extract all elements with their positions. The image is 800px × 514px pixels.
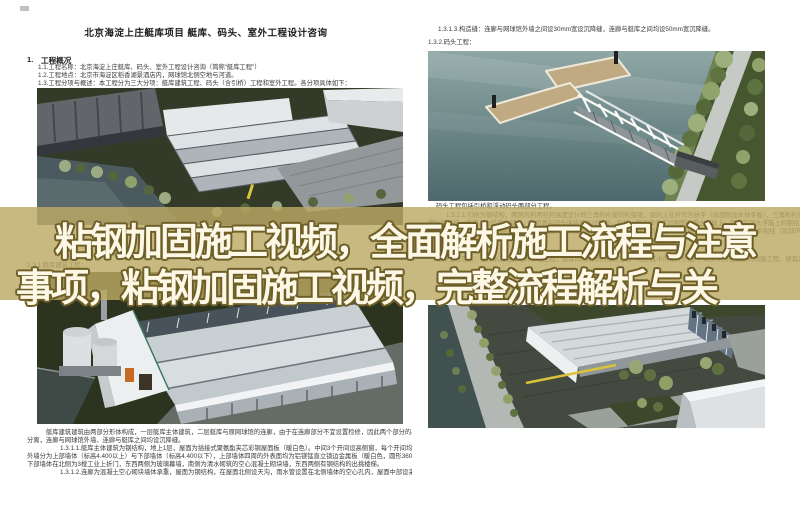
body-line: 外墙分为上部墙体（标高4.400以上）与下部墙体（标高4.400以下），上部墙体… — [27, 453, 412, 461]
overlay-title-line-2: 事项，粘钢加固施工视频，完整流程解析与关 — [16, 257, 716, 312]
page-corner-mark — [20, 6, 29, 11]
body-line: 1.3.1.2.连廊为混凝土空心砌块墙体承重，屋面为钢结构，在屋面北侧设天沟，雨… — [60, 469, 412, 477]
body-line: 分离，连廊与网球馆外墙、连廊与艇库之间均设沉降缝。 — [27, 437, 184, 445]
intro-line: 1.1.工程名称：北京海淀上庄艇库、码头、室外工程设计咨询（简称“艇库工程”） — [38, 64, 261, 72]
body-line: 1.3.1.1.艇库主体建筑为钢结构，地上1层，屋面为插接式聚氨酯夹芯彩钢屋面板… — [60, 445, 412, 453]
body-line: 下部墙体在北侧为3樘工业上折门，东西两侧为玻璃幕墙，南侧为清水砌筑的空心混凝土砌… — [27, 461, 383, 469]
intro-line: 1.2.工程地点：北京市海淀区稻香湖景酒店内，网球馆北侧空地与河道。 — [38, 72, 237, 80]
screenshot-root: 北京海淀上庄艇库项目 艇库、码头、室外工程设计咨询 1. 工程概况 1.1.工程… — [0, 0, 800, 514]
dock-heading: 1.3.2.码头工程： — [428, 39, 475, 47]
structural-joint-line: 1.3.1.3.构造缝：连廊与网球馆外墙之间设30mm宽设沉降缝，连廊与艇库之间… — [438, 26, 714, 34]
dock-bridge-render-image — [428, 51, 765, 201]
section-number: 1. — [27, 55, 33, 64]
document-title: 北京海淀上庄艇库项目 艇库、码头、室外工程设计咨询 — [0, 25, 412, 39]
intro-line: 1.3.工程分项与概述：本工程分为三大分项：艇库建筑工程、码头（含引桥）工程和室… — [38, 80, 351, 88]
aerial-site-render-image — [37, 88, 403, 225]
body-line: 艇库建筑建筑由两部分形体构成，一层艇库主体建筑，二层艇库与原网球馆的连廊，由于在… — [46, 429, 412, 437]
site-plan-render-image — [428, 305, 765, 428]
